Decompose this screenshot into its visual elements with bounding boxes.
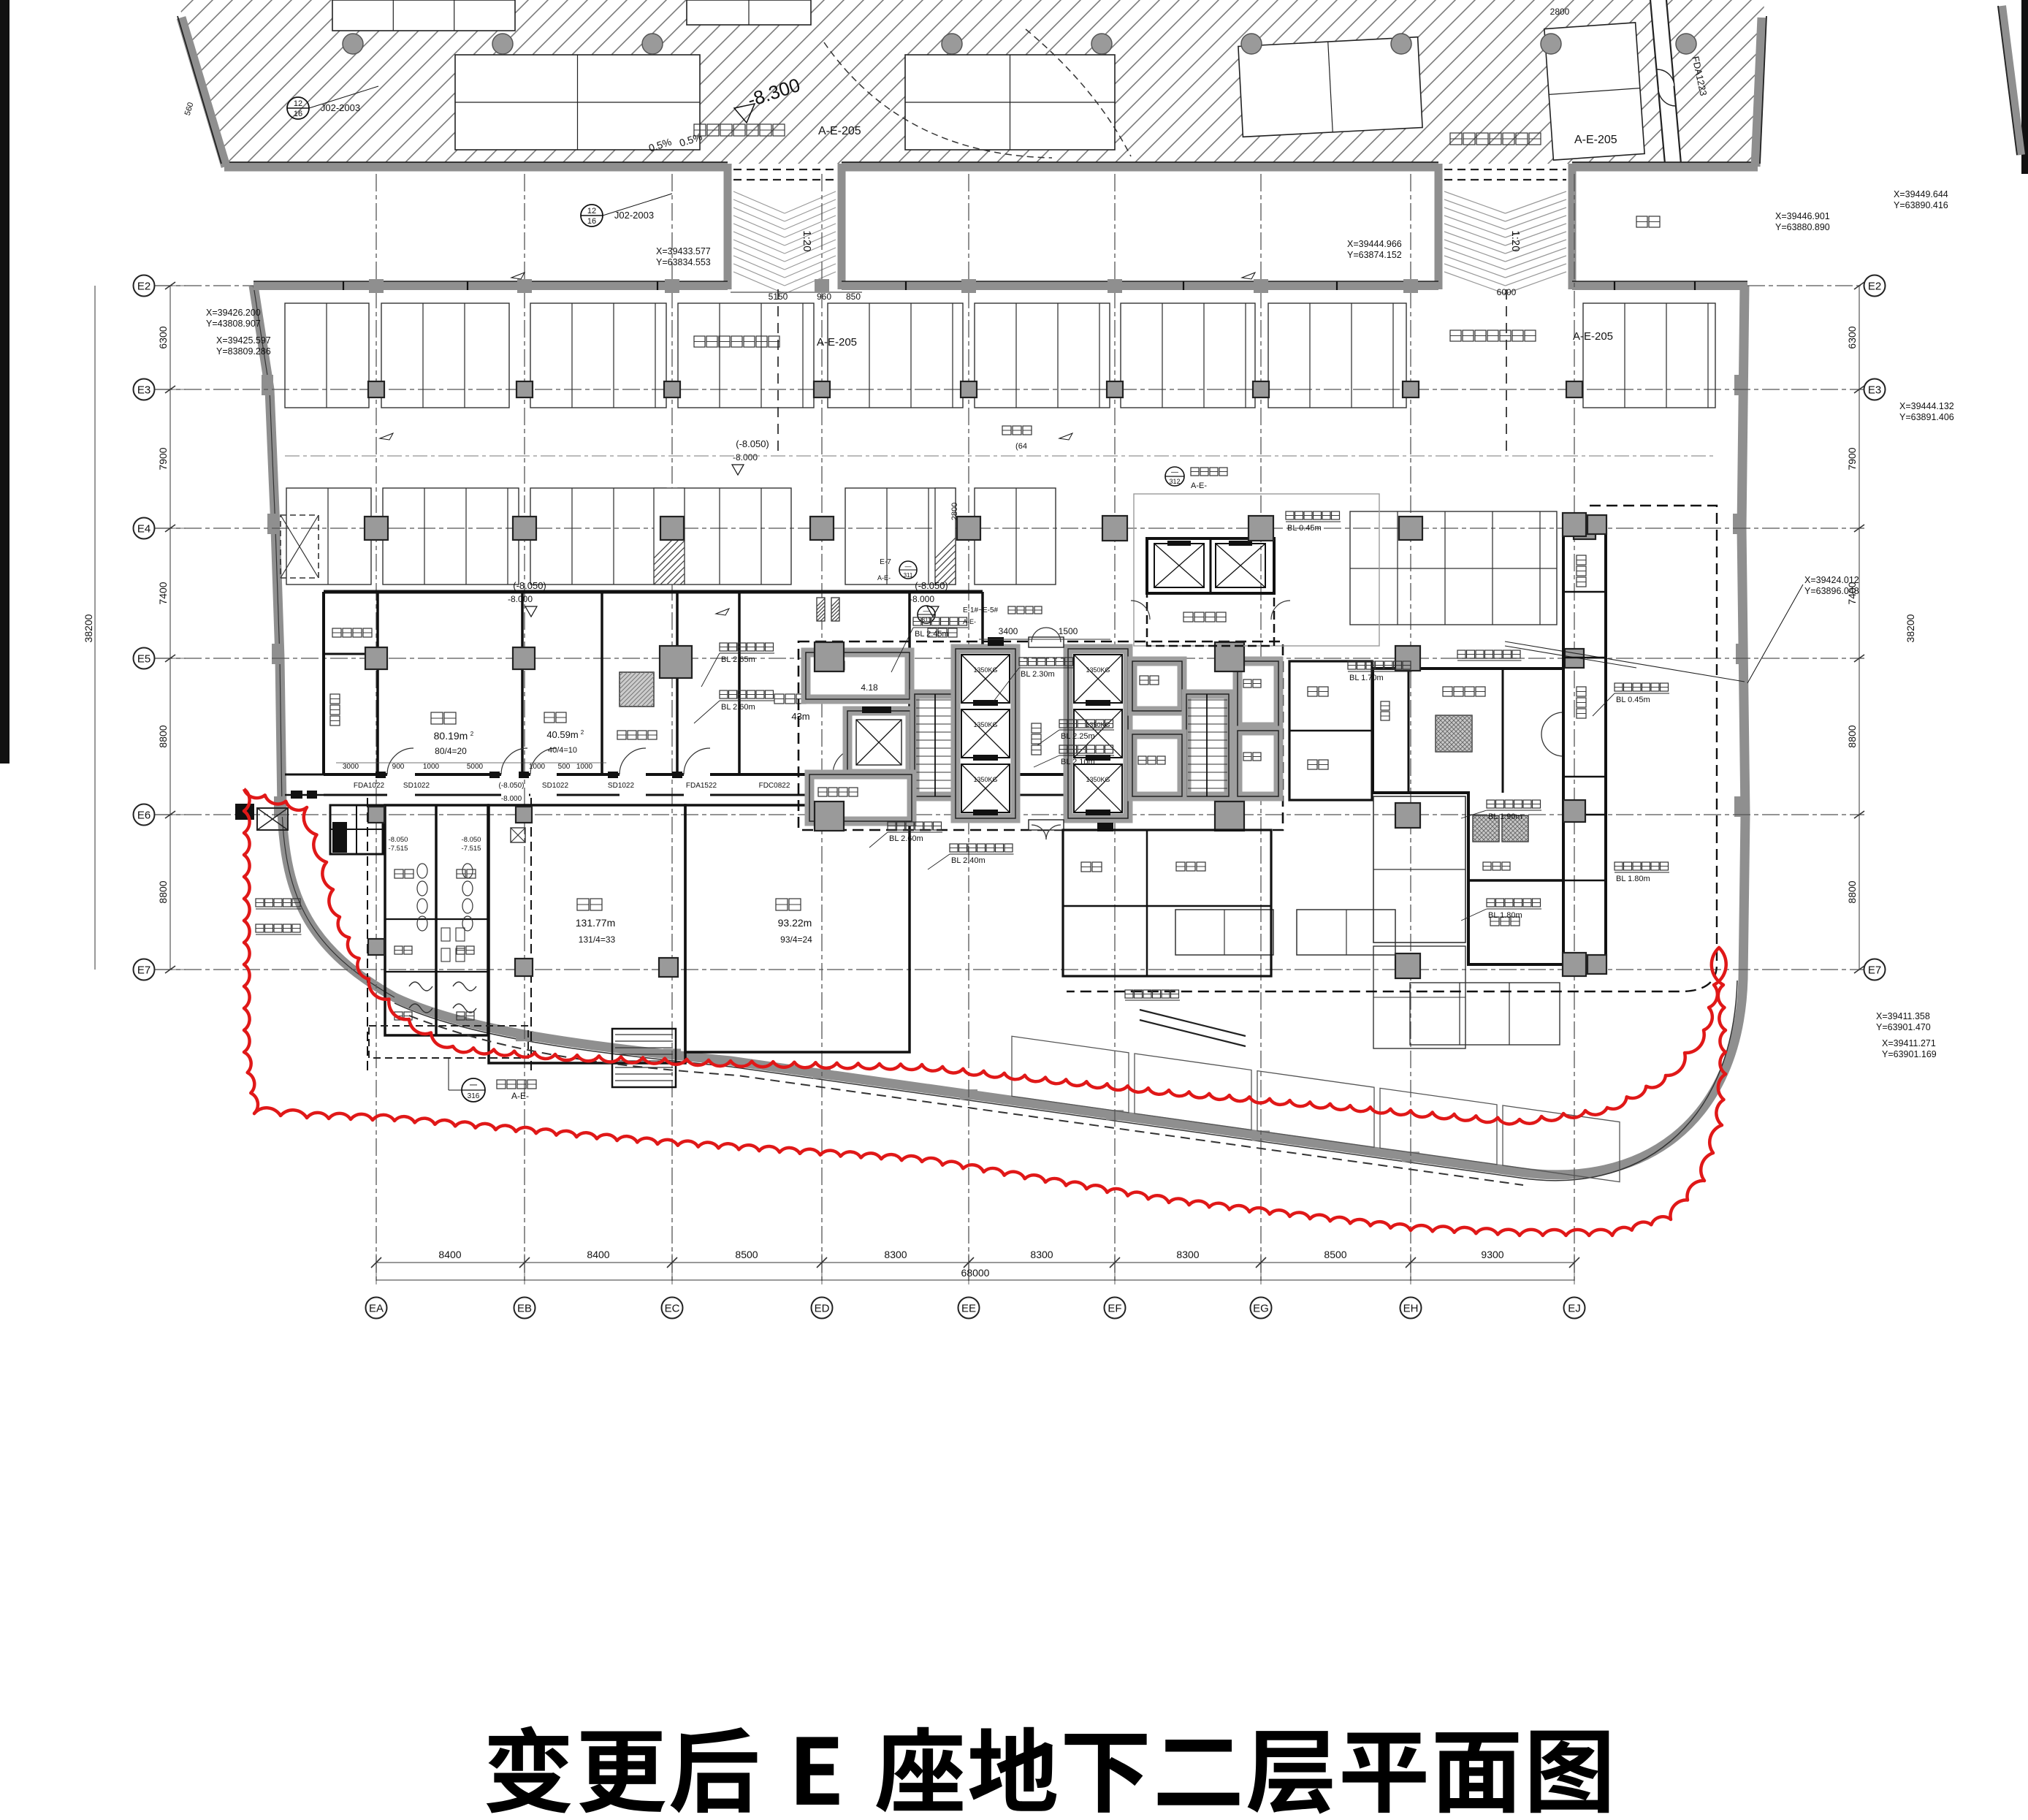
svg-text:900: 900 xyxy=(392,763,405,771)
svg-text:43m: 43m xyxy=(791,711,809,722)
svg-text:E-7: E-7 xyxy=(880,558,891,566)
svg-text:2: 2 xyxy=(581,729,584,736)
svg-text:EC: EC xyxy=(665,1303,680,1315)
svg-text:—: — xyxy=(923,607,930,614)
svg-text:SD1022: SD1022 xyxy=(608,782,635,790)
svg-text:BL 0.45m: BL 0.45m xyxy=(1616,696,1650,704)
svg-text:X=39449.644: X=39449.644 xyxy=(1894,189,1948,199)
svg-text:X=39411.358: X=39411.358 xyxy=(1876,1011,1930,1021)
svg-text:3400: 3400 xyxy=(999,626,1018,636)
svg-text:(-8.050): (-8.050) xyxy=(498,782,524,790)
svg-text:A-E-205: A-E-205 xyxy=(818,125,861,137)
svg-text:-8.000: -8.000 xyxy=(501,795,522,803)
svg-text:8800: 8800 xyxy=(157,880,169,903)
svg-text:A-E-: A-E- xyxy=(511,1091,529,1101)
svg-text:E3: E3 xyxy=(137,384,150,397)
svg-text:1350KG: 1350KG xyxy=(1086,666,1110,674)
svg-text:E2: E2 xyxy=(1868,281,1881,293)
svg-text:BL 1.80m: BL 1.80m xyxy=(1616,875,1650,883)
svg-text:-8.000: -8.000 xyxy=(733,452,758,462)
svg-text:J02-2003: J02-2003 xyxy=(321,102,360,113)
svg-text:X=39444.132: X=39444.132 xyxy=(1899,401,1954,411)
svg-text:A-E-205: A-E-205 xyxy=(1574,134,1617,146)
svg-text:6300: 6300 xyxy=(1846,326,1858,349)
svg-text:1:20: 1:20 xyxy=(1509,230,1522,251)
svg-text:7400: 7400 xyxy=(157,582,169,604)
svg-text:BL 1.70m: BL 1.70m xyxy=(1349,674,1384,682)
svg-text:8400: 8400 xyxy=(587,1249,609,1260)
svg-text:8300: 8300 xyxy=(1176,1249,1199,1260)
svg-text:BL 1.80m: BL 1.80m xyxy=(1488,911,1522,920)
svg-text:A-E-: A-E- xyxy=(963,618,976,625)
svg-text:BL 2.60m: BL 2.60m xyxy=(721,703,755,712)
svg-text:16: 16 xyxy=(294,110,302,118)
svg-text:Y=83809.286: Y=83809.286 xyxy=(216,346,271,357)
svg-text:8800: 8800 xyxy=(157,725,169,747)
svg-text:12: 12 xyxy=(294,99,302,108)
svg-text:6300: 6300 xyxy=(157,326,169,349)
svg-text:9300: 9300 xyxy=(1481,1249,1503,1260)
svg-text:J02-2003: J02-2003 xyxy=(614,210,654,221)
svg-text:E-1#~E-5#: E-1#~E-5# xyxy=(963,606,999,614)
svg-text:EB: EB xyxy=(517,1303,532,1315)
svg-text:8400: 8400 xyxy=(438,1249,461,1260)
svg-text:E7: E7 xyxy=(137,964,150,977)
svg-text:BL 2.45m: BL 2.45m xyxy=(915,630,949,639)
svg-text:Y=63891.406: Y=63891.406 xyxy=(1899,412,1954,422)
svg-text:BL 1.90m: BL 1.90m xyxy=(1488,812,1522,821)
svg-text:A-E-: A-E- xyxy=(877,574,891,582)
svg-text:131.77m: 131.77m xyxy=(576,917,615,929)
svg-text:-8.000: -8.000 xyxy=(910,594,934,604)
svg-text:2: 2 xyxy=(470,731,474,737)
svg-text:1500: 1500 xyxy=(1059,626,1078,636)
svg-text:-8.050: -8.050 xyxy=(462,836,481,844)
svg-text:7900: 7900 xyxy=(1846,447,1858,470)
svg-text:38200: 38200 xyxy=(1905,614,1916,642)
svg-text:X=39411.271: X=39411.271 xyxy=(1882,1038,1936,1048)
svg-text:Y=63896.048: Y=63896.048 xyxy=(1804,586,1859,596)
svg-text:Y=43808.907: Y=43808.907 xyxy=(206,319,261,329)
svg-text:5000: 5000 xyxy=(467,763,484,771)
svg-text:-8.050: -8.050 xyxy=(389,836,408,844)
svg-text:X=39425.597: X=39425.597 xyxy=(216,335,271,346)
svg-text:1350KG: 1350KG xyxy=(1086,776,1110,783)
svg-text:X=39446.901: X=39446.901 xyxy=(1775,211,1830,221)
svg-text:FDC0822: FDC0822 xyxy=(759,782,790,790)
svg-text:FDA1022: FDA1022 xyxy=(354,782,385,790)
svg-text:Y=63901.470: Y=63901.470 xyxy=(1876,1022,1931,1032)
svg-text:1000: 1000 xyxy=(423,763,440,771)
svg-text:Y=63901.169: Y=63901.169 xyxy=(1882,1049,1937,1059)
svg-text:68000: 68000 xyxy=(961,1267,990,1279)
svg-text:—: — xyxy=(1171,468,1178,476)
svg-text:EG: EG xyxy=(1253,1303,1269,1315)
svg-text:EF: EF xyxy=(1108,1303,1121,1315)
svg-text:Y=63834.553: Y=63834.553 xyxy=(656,257,711,267)
svg-text:ED: ED xyxy=(815,1303,830,1315)
svg-text:E4: E4 xyxy=(137,523,150,536)
svg-text:EA: EA xyxy=(369,1303,384,1315)
svg-text:8500: 8500 xyxy=(1324,1249,1346,1260)
svg-text:1000: 1000 xyxy=(576,763,593,771)
svg-text:-8.000: -8.000 xyxy=(508,594,533,604)
svg-text:850: 850 xyxy=(846,292,861,302)
svg-text:8300: 8300 xyxy=(884,1249,907,1260)
svg-text:38200: 38200 xyxy=(83,614,94,642)
svg-text:131/4=33: 131/4=33 xyxy=(579,934,616,945)
svg-text:Y=63890.416: Y=63890.416 xyxy=(1894,200,1948,210)
svg-text:E6: E6 xyxy=(137,810,150,822)
svg-text:(-8.050): (-8.050) xyxy=(915,580,948,591)
svg-text:3000: 3000 xyxy=(343,763,359,771)
svg-text:BL 2.25m: BL 2.25m xyxy=(1061,732,1095,741)
svg-text:—: — xyxy=(905,563,912,570)
svg-text:BL 0.45m: BL 0.45m xyxy=(1287,524,1322,533)
svg-text:X=39424.012: X=39424.012 xyxy=(1804,575,1859,585)
svg-text:8800: 8800 xyxy=(1846,880,1858,903)
svg-text:8300: 8300 xyxy=(1030,1249,1053,1260)
svg-text:1000: 1000 xyxy=(529,763,546,771)
svg-text:EJ: EJ xyxy=(1568,1303,1581,1315)
svg-text:SD1022: SD1022 xyxy=(403,782,430,790)
svg-text:BL 2.60m: BL 2.60m xyxy=(889,834,923,843)
svg-text:8500: 8500 xyxy=(735,1249,758,1260)
svg-text:312: 312 xyxy=(1169,478,1180,485)
svg-text:EH: EH xyxy=(1403,1303,1419,1315)
svg-text:(64: (64 xyxy=(1015,442,1027,451)
svg-text:2800: 2800 xyxy=(950,503,959,520)
svg-text:Y=63880.890: Y=63880.890 xyxy=(1775,222,1830,232)
svg-text:-7.515: -7.515 xyxy=(389,845,408,853)
svg-text:2800: 2800 xyxy=(1550,7,1570,17)
svg-text:4.18: 4.18 xyxy=(861,682,878,693)
svg-text:40/4=10: 40/4=10 xyxy=(548,746,577,755)
svg-text:BL 2.30m: BL 2.30m xyxy=(1021,670,1055,679)
svg-text:12: 12 xyxy=(587,207,596,216)
svg-text:1:20: 1:20 xyxy=(801,230,813,251)
svg-text:EE: EE xyxy=(961,1303,976,1315)
svg-text:X=39433.577: X=39433.577 xyxy=(656,246,711,256)
svg-text:16: 16 xyxy=(587,217,596,226)
svg-text:8800: 8800 xyxy=(1846,725,1858,747)
svg-text:SD1022: SD1022 xyxy=(542,782,569,790)
svg-text:BL 2.40m: BL 2.40m xyxy=(951,856,986,865)
svg-text:BL 2.10m: BL 2.10m xyxy=(1061,758,1095,766)
svg-text:93.22m: 93.22m xyxy=(778,917,812,929)
svg-text:1350KG: 1350KG xyxy=(973,721,997,728)
svg-text:1350KG: 1350KG xyxy=(973,666,997,674)
svg-text:Y=63874.152: Y=63874.152 xyxy=(1347,250,1402,260)
svg-text:X=39444.966: X=39444.966 xyxy=(1347,239,1402,249)
svg-text:311: 311 xyxy=(904,572,913,579)
svg-text:A-E-205: A-E-205 xyxy=(817,336,857,349)
svg-text:7900: 7900 xyxy=(157,447,169,470)
svg-text:BL 2.65m: BL 2.65m xyxy=(721,655,755,664)
svg-text:E5: E5 xyxy=(137,653,150,666)
svg-text:80.19m: 80.19m xyxy=(434,730,468,742)
svg-text:-7.515: -7.515 xyxy=(462,845,481,853)
svg-text:316: 316 xyxy=(468,1092,480,1100)
svg-text:E2: E2 xyxy=(137,281,150,293)
svg-text:X=39426.200: X=39426.200 xyxy=(206,308,261,318)
svg-text:一: 一 xyxy=(470,1081,478,1090)
svg-text:960: 960 xyxy=(817,292,831,302)
svg-text:500: 500 xyxy=(558,763,571,771)
svg-text:93/4=24: 93/4=24 xyxy=(780,934,812,945)
svg-text:(-8.050): (-8.050) xyxy=(513,580,546,591)
svg-text:1350KG: 1350KG xyxy=(973,776,997,783)
svg-text:E7: E7 xyxy=(1868,964,1881,977)
svg-text:A-E-: A-E- xyxy=(1191,481,1207,490)
svg-text:40.59m: 40.59m xyxy=(546,729,578,740)
svg-text:A-E-205: A-E-205 xyxy=(1573,330,1613,343)
svg-text:(-8.050): (-8.050) xyxy=(736,438,769,449)
svg-text:E3: E3 xyxy=(1868,384,1881,397)
svg-text:FDA1522: FDA1522 xyxy=(686,782,717,790)
svg-text:80/4=20: 80/4=20 xyxy=(435,746,467,756)
